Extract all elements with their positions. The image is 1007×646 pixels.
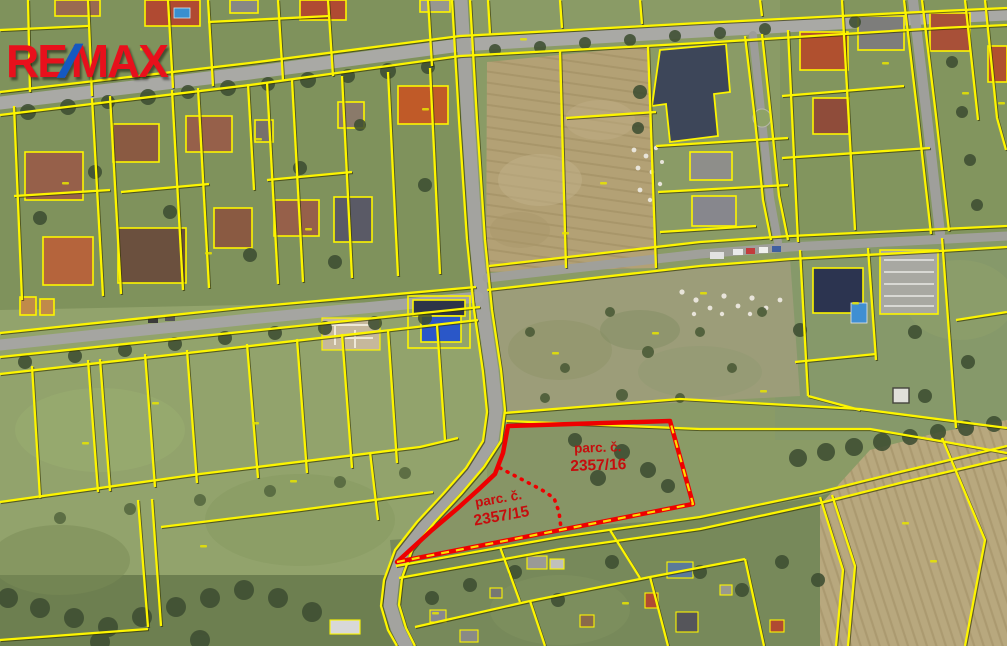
aerial-imagery bbox=[0, 0, 1007, 646]
greenhouse bbox=[880, 250, 938, 314]
remax-logo: RE/MAX bbox=[6, 38, 167, 84]
property-map-image: RE/MAX parc. č. 2357/16 parc. č. 2357/15 bbox=[0, 0, 1007, 646]
parcel-label-2357-16: parc. č. 2357/16 bbox=[549, 439, 646, 474]
logo-text-max: MAX bbox=[71, 35, 167, 87]
parcel-label-prefix: parc. č. bbox=[549, 439, 645, 456]
